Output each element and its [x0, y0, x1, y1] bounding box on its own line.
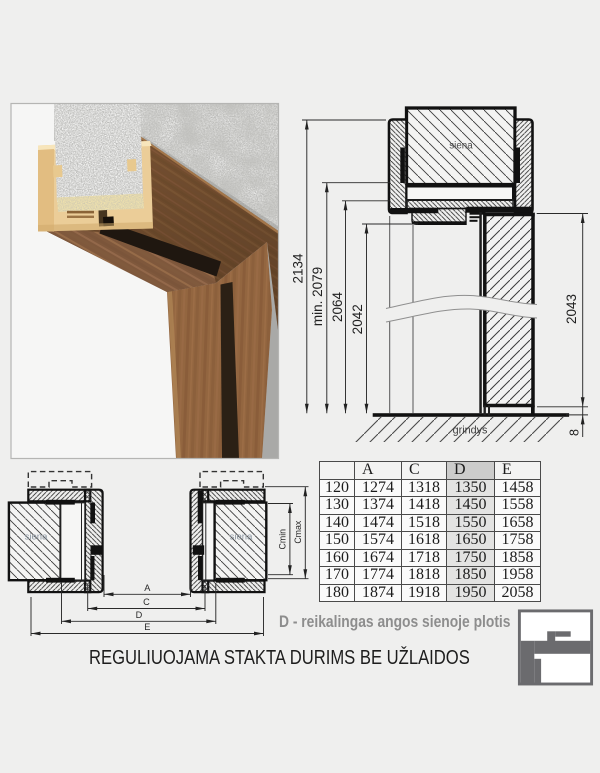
svg-text:siena: siena — [449, 141, 473, 152]
svg-text:2042: 2042 — [350, 304, 365, 334]
svg-text:Cmax: Cmax — [293, 520, 303, 544]
svg-text:A: A — [144, 583, 151, 593]
svg-text:siena: siena — [25, 532, 48, 543]
svg-text:8: 8 — [567, 429, 581, 436]
svg-text:siena: siena — [230, 532, 253, 543]
svg-text:2064: 2064 — [330, 291, 345, 322]
svg-text:C: C — [143, 597, 150, 607]
svg-text:D: D — [136, 610, 143, 620]
svg-text:E: E — [144, 622, 150, 632]
svg-text:Cmin: Cmin — [278, 529, 288, 550]
svg-text:2134: 2134 — [290, 253, 305, 284]
svg-text:grindys: grindys — [453, 425, 488, 437]
svg-text:2043: 2043 — [564, 294, 579, 324]
svg-text:min. 2079: min. 2079 — [310, 267, 325, 326]
